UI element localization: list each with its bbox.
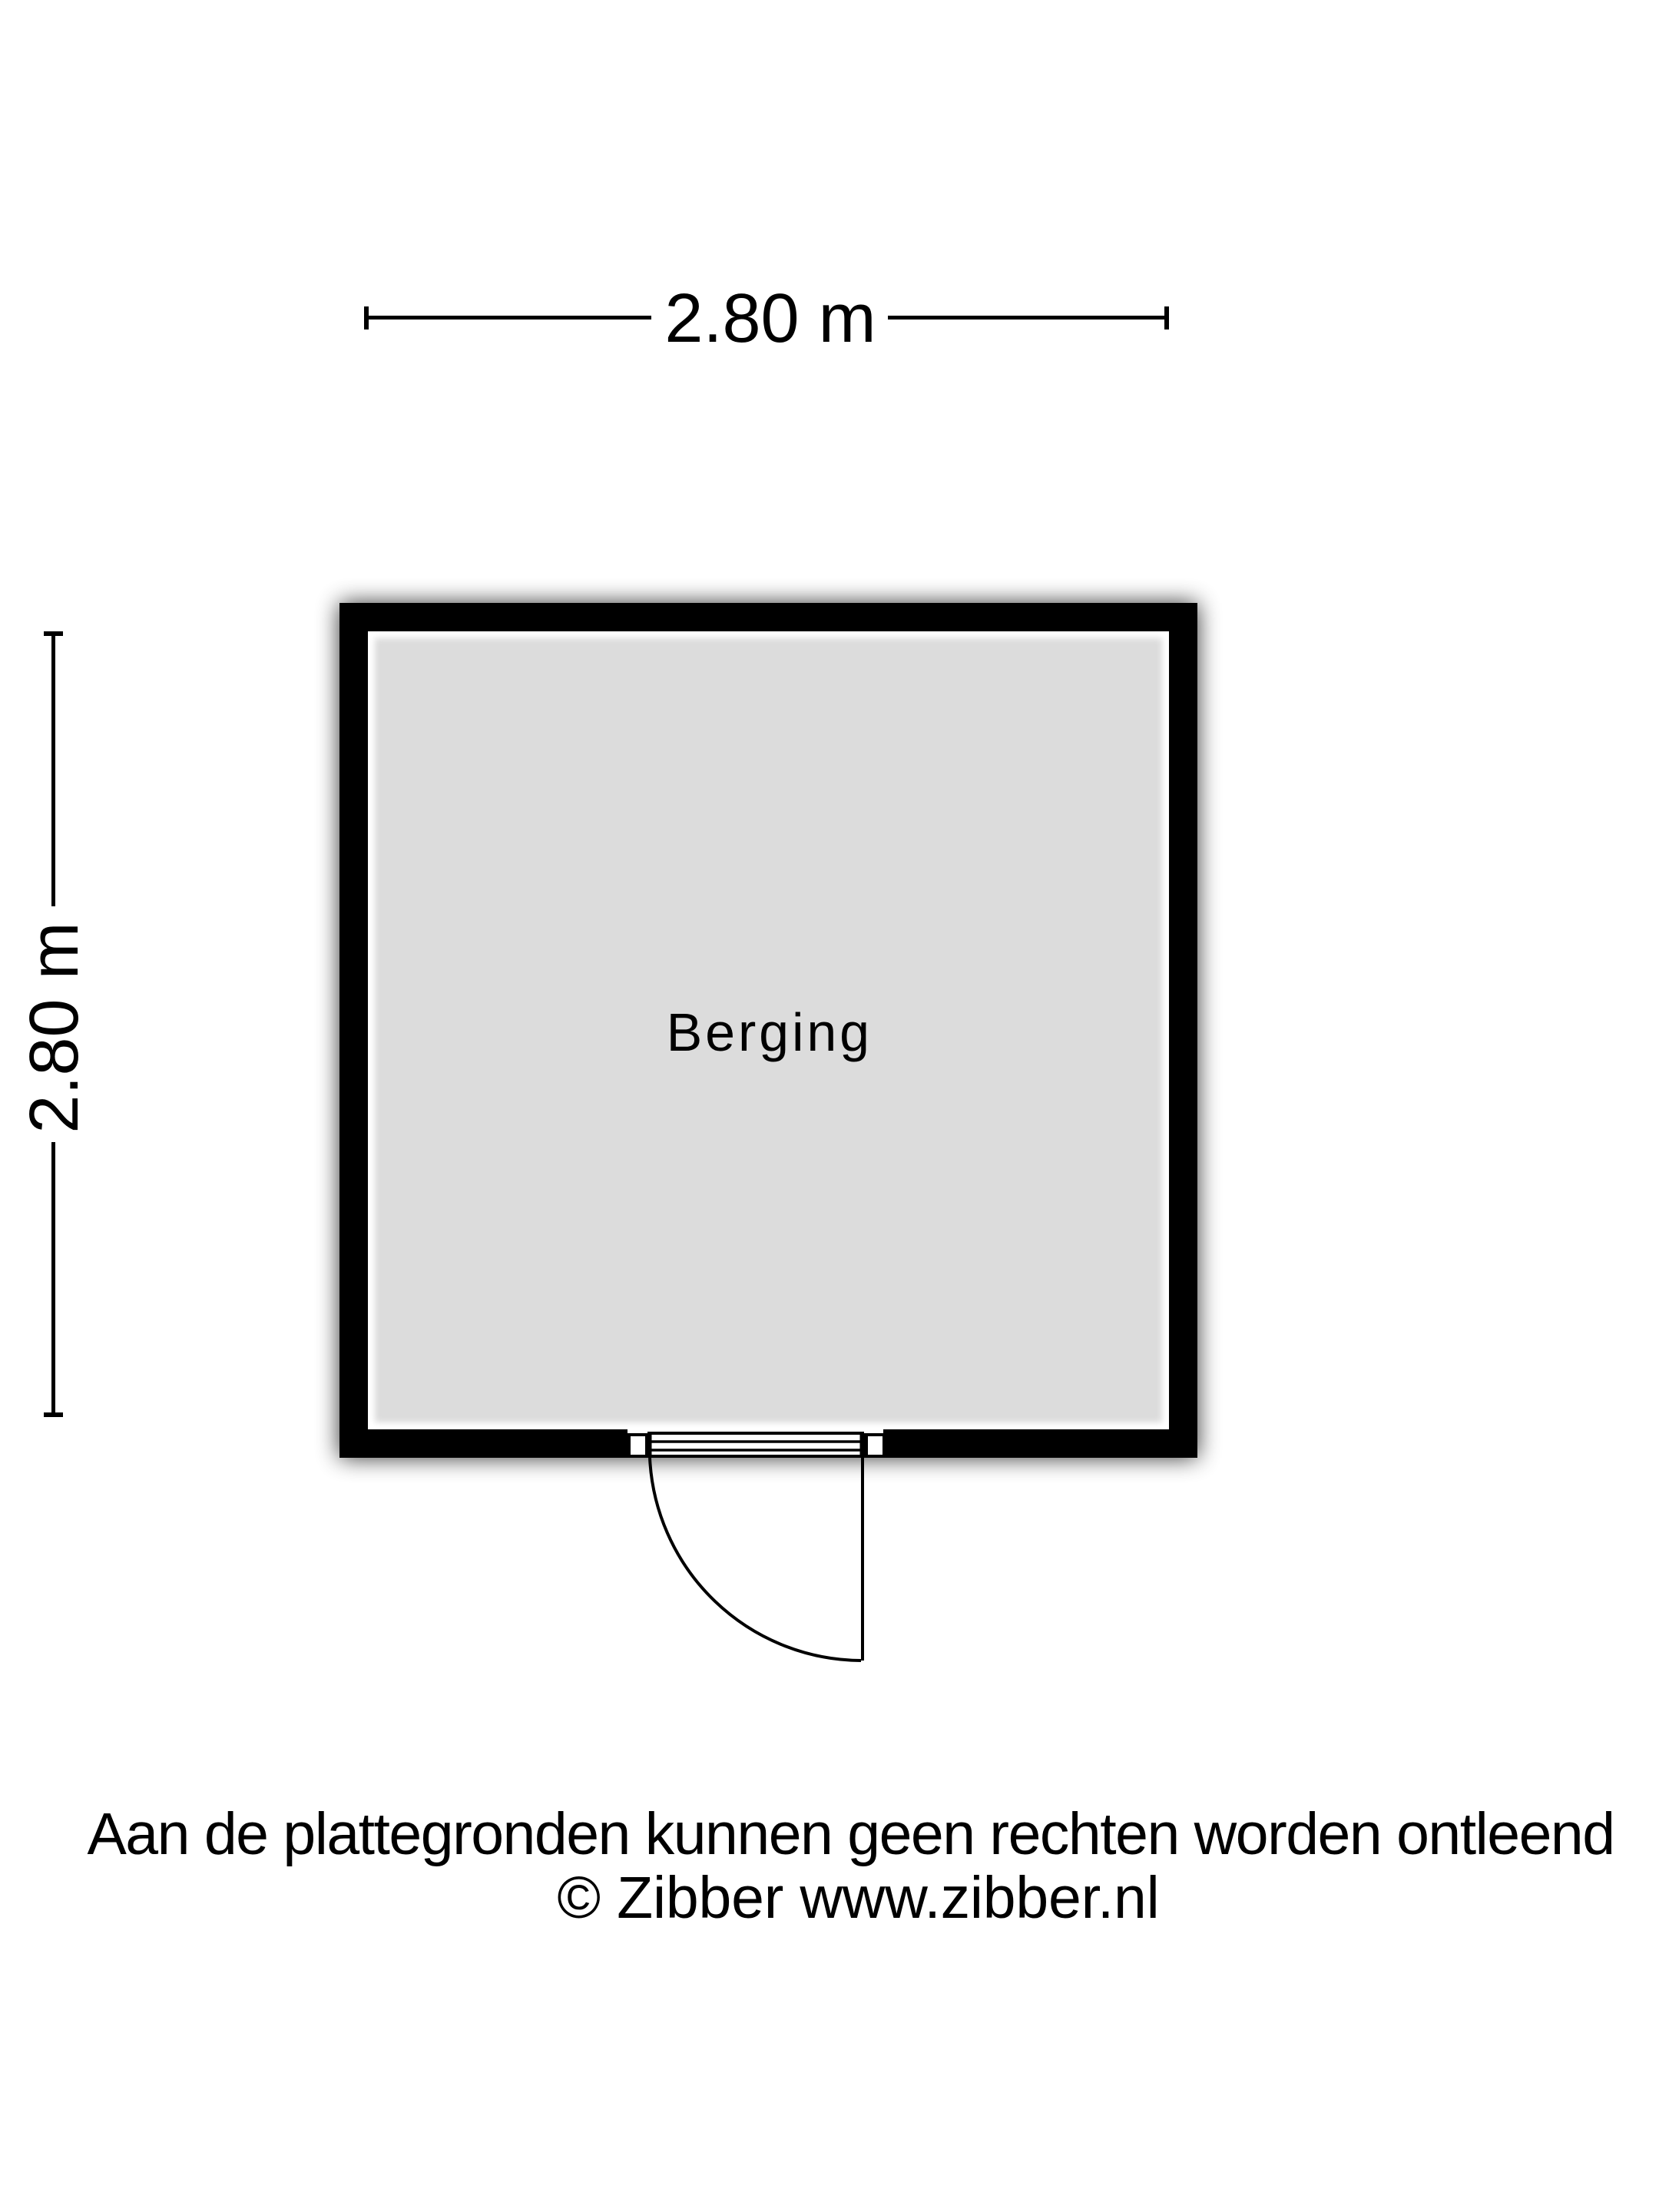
svg-text:2.80 m: 2.80 m	[16, 922, 93, 1133]
svg-text:2.80 m: 2.80 m	[664, 280, 876, 357]
svg-text:Berging: Berging	[667, 1002, 873, 1062]
svg-text:© Zibber www.zibber.nl: © Zibber www.zibber.nl	[557, 1865, 1159, 1931]
svg-text:Aan de plattegronden kunnen ge: Aan de plattegronden kunnen geen rechten…	[87, 1801, 1614, 1867]
